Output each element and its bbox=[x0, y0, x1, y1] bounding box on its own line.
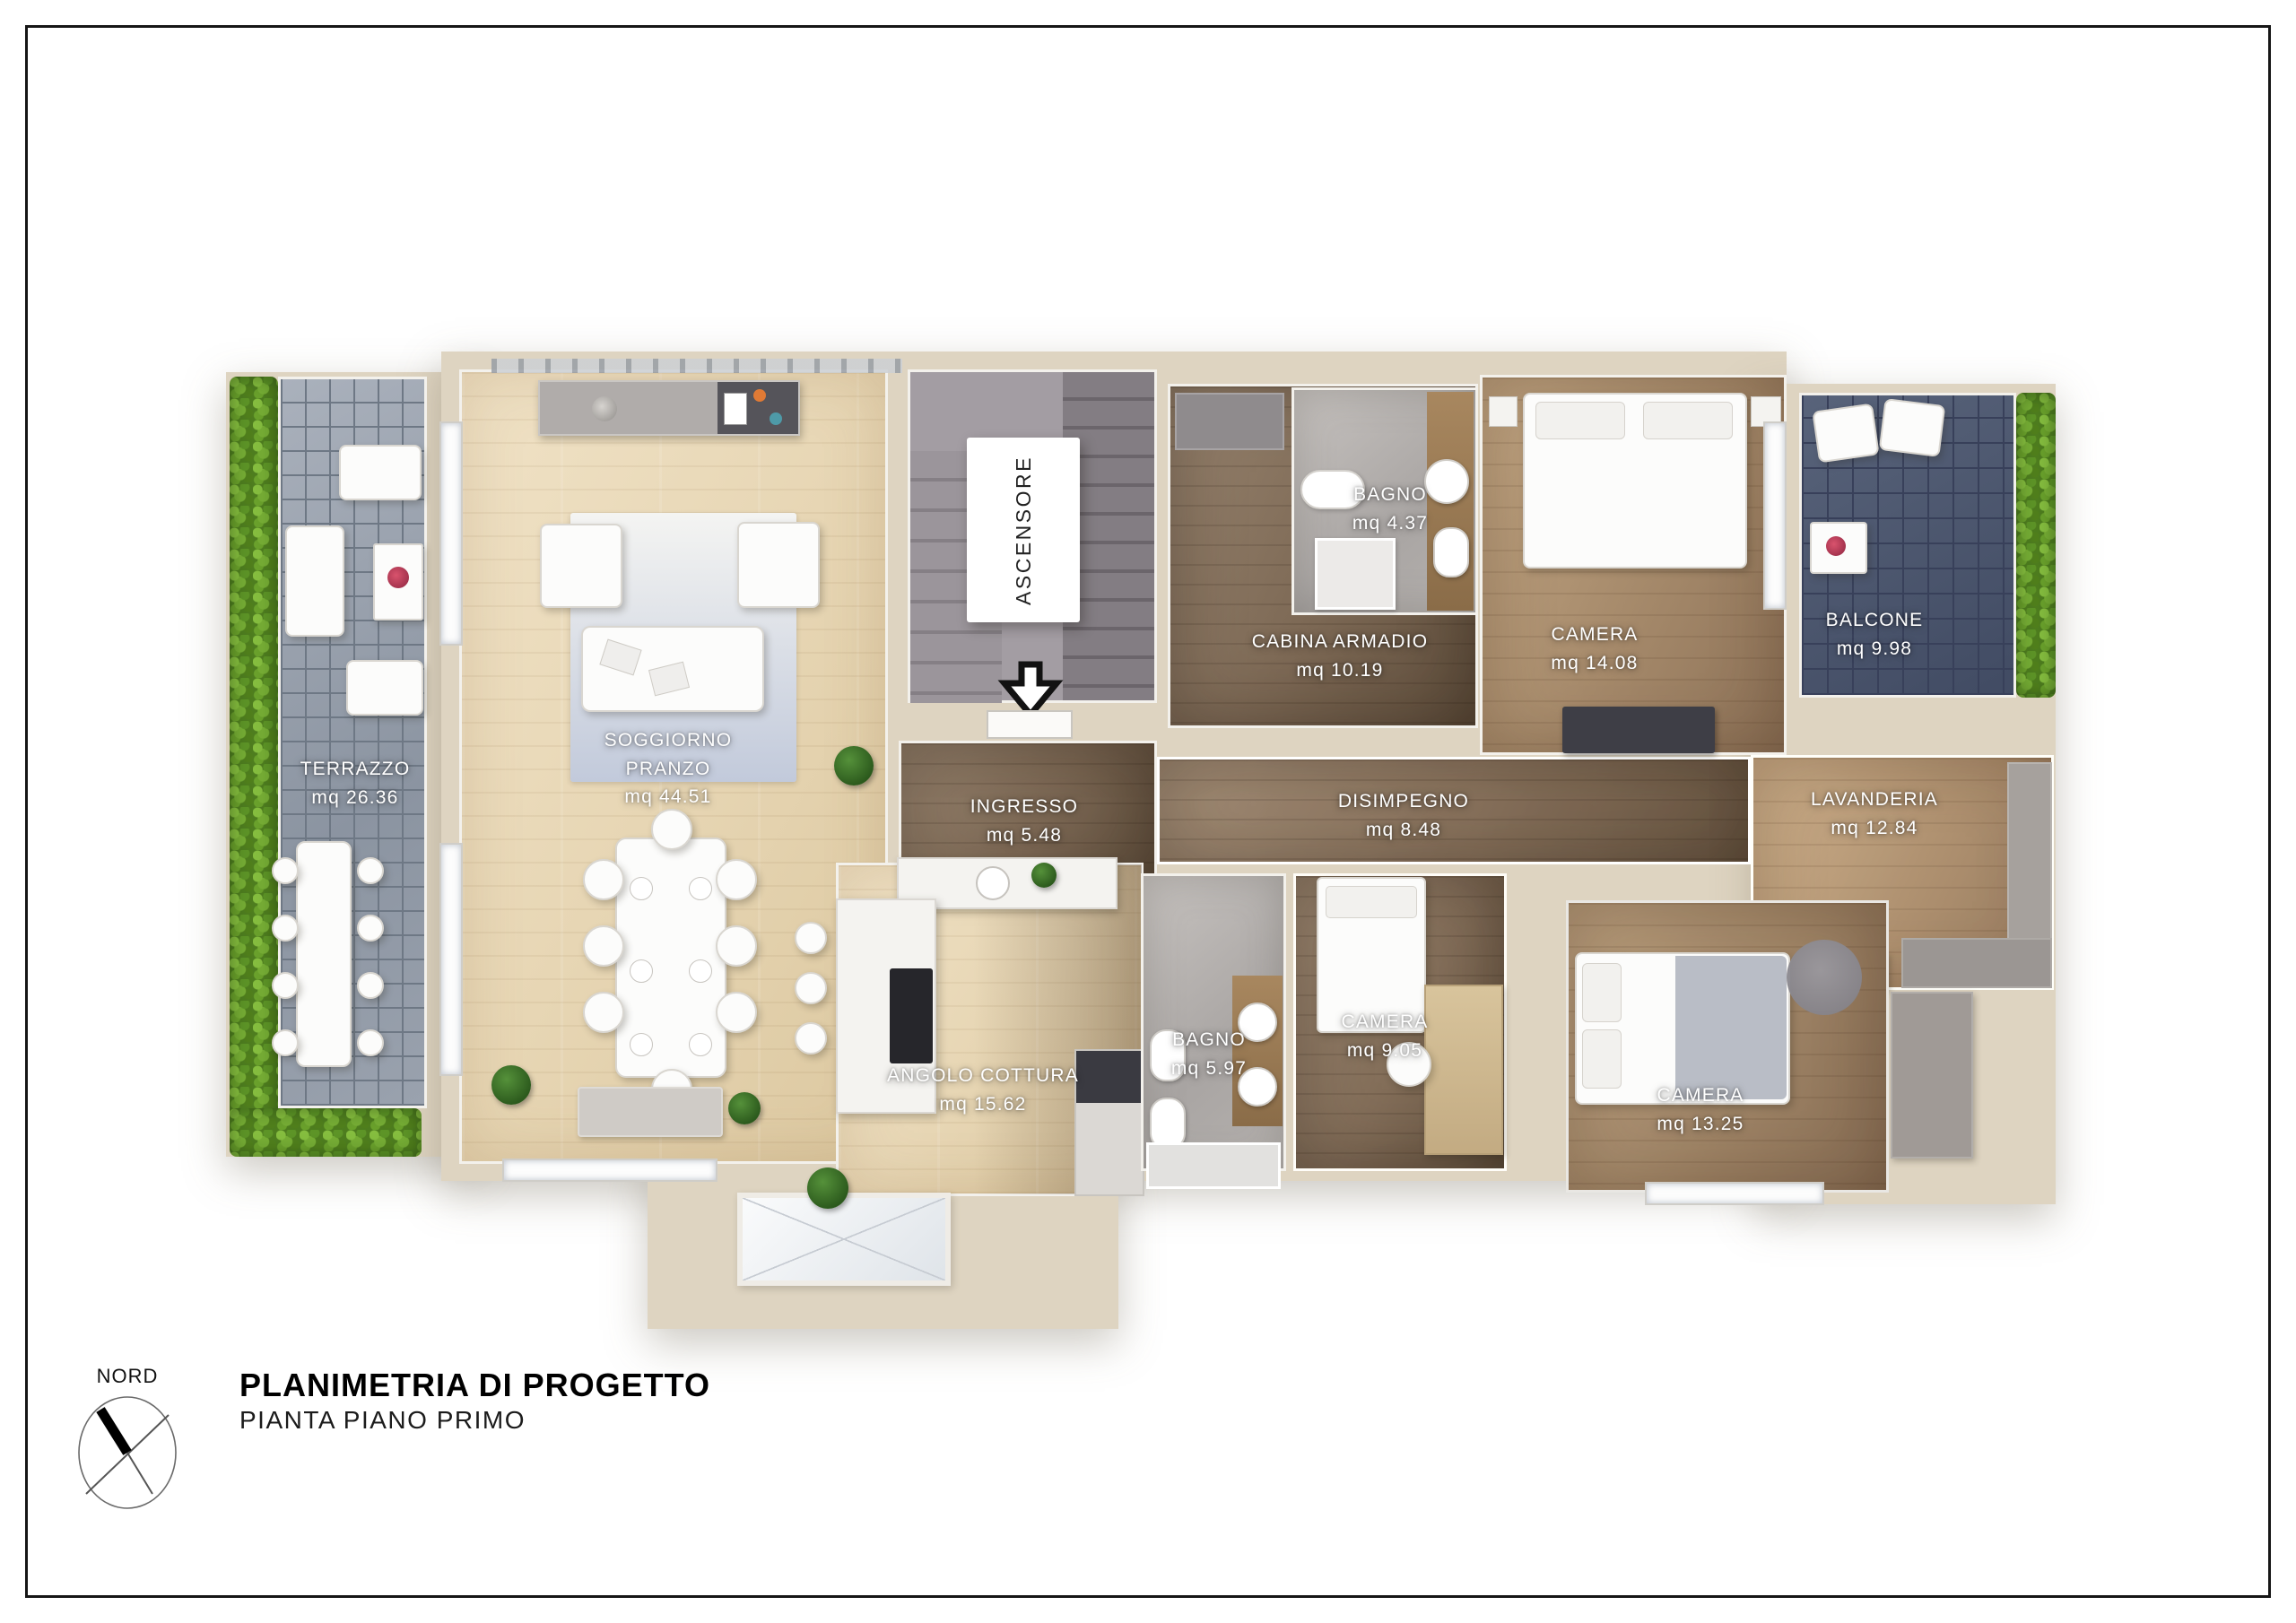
label-lavanderia: LAVANDERIA mq 12.84 bbox=[1767, 785, 1982, 842]
room-name: SOGGIORNO PRANZO bbox=[587, 726, 749, 783]
floorplan-page: ASCENSORE bbox=[0, 0, 2296, 1623]
terrace-chair bbox=[272, 1029, 299, 1056]
skylight bbox=[737, 1193, 951, 1286]
label-angolo-cottura: ANGOLO COTTURA mq 15.62 bbox=[839, 1062, 1126, 1118]
nightstand bbox=[1489, 396, 1518, 427]
terrace-chair bbox=[357, 972, 384, 999]
sofa bbox=[581, 626, 764, 712]
wardrobe-grey bbox=[1891, 992, 1973, 1159]
room-name: BAGNO bbox=[1151, 1026, 1267, 1055]
sofa-pillow bbox=[648, 662, 690, 697]
hedge-bottom bbox=[230, 1108, 422, 1157]
dining-chair bbox=[583, 859, 624, 900]
terrace-sofa bbox=[339, 445, 422, 500]
hedge-right bbox=[2016, 393, 2056, 698]
room-area: mq 44.51 bbox=[587, 783, 749, 811]
dining-chair bbox=[716, 859, 757, 900]
compass-north-label: NORD bbox=[97, 1365, 159, 1388]
room-area: mq 9.05 bbox=[1313, 1037, 1457, 1065]
deco-orange bbox=[753, 389, 766, 402]
label-camera-singola: CAMERA mq 9.05 bbox=[1313, 1008, 1457, 1064]
label-camera-grande: CAMERA mq 14.08 bbox=[1505, 621, 1684, 677]
soggiorno-window-left-1 bbox=[439, 421, 463, 646]
terrace-sofa bbox=[285, 525, 344, 637]
pillow bbox=[1582, 1029, 1622, 1089]
cooktop bbox=[890, 968, 933, 1063]
label-terrazzo: TERRAZZO mq 26.36 bbox=[279, 755, 431, 811]
balcony-chair bbox=[1812, 404, 1879, 464]
room-area: mq 4.37 bbox=[1327, 509, 1453, 538]
deco-teal bbox=[770, 412, 782, 425]
laundry-cabinet-corner bbox=[1901, 938, 2052, 988]
elevator-label: ASCENSORE bbox=[1012, 456, 1036, 605]
terrace-chair bbox=[272, 857, 299, 884]
dining-chair bbox=[651, 809, 692, 850]
room-name: LAVANDERIA bbox=[1767, 785, 1982, 814]
plant bbox=[1031, 863, 1057, 888]
plant bbox=[728, 1092, 761, 1124]
room-name: INGRESSO bbox=[935, 793, 1114, 821]
place-setting bbox=[630, 877, 653, 900]
closet-row bbox=[1175, 393, 1284, 450]
room-area: mq 8.48 bbox=[1296, 816, 1511, 845]
label-bagno-piccolo: BAGNO mq 4.37 bbox=[1327, 481, 1453, 537]
pillow bbox=[1326, 886, 1417, 918]
bar-stool bbox=[795, 1022, 827, 1055]
terrace-chair bbox=[357, 915, 384, 942]
room-name: CAMERA bbox=[1505, 621, 1684, 649]
tv-console-dark bbox=[1562, 707, 1715, 753]
label-bagno-grande: BAGNO mq 5.97 bbox=[1151, 1026, 1267, 1082]
label-balcone: BALCONE mq 9.98 bbox=[1794, 606, 1955, 663]
terrace-sofa bbox=[346, 660, 423, 716]
sofa-pillow bbox=[599, 639, 641, 676]
room-name: CAMERA bbox=[1629, 1081, 1772, 1110]
dining-chair bbox=[583, 992, 624, 1033]
sideboard bbox=[538, 380, 800, 436]
room-name: BALCONE bbox=[1794, 606, 1955, 635]
label-camera-doppia: CAMERA mq 13.25 bbox=[1629, 1081, 1772, 1138]
terrace-dining-table bbox=[296, 841, 352, 1067]
pergola-grille bbox=[491, 359, 902, 373]
label-soggiorno: SOGGIORNO PRANZO mq 44.51 bbox=[587, 726, 749, 811]
room-area: mq 26.36 bbox=[279, 784, 431, 812]
plan-subtitle: PIANTA PIANO PRIMO bbox=[239, 1406, 526, 1435]
label-ingresso: INGRESSO mq 5.48 bbox=[935, 793, 1114, 849]
camera-doppia-window bbox=[1645, 1182, 1824, 1205]
flower-vase bbox=[387, 567, 409, 588]
round-rug bbox=[1787, 940, 1862, 1015]
terrace-chair bbox=[272, 972, 299, 999]
bar-stool bbox=[795, 922, 827, 954]
camera-grande-window bbox=[1763, 421, 1787, 610]
pillow bbox=[1643, 402, 1733, 439]
room-area: mq 5.48 bbox=[935, 821, 1114, 850]
terrace-chair bbox=[357, 857, 384, 884]
label-disimpegno: DISIMPEGNO mq 8.48 bbox=[1296, 787, 1511, 844]
label-cabina-armadio: CABINA ARMADIO mq 10.19 bbox=[1196, 628, 1483, 684]
room-name: TERRAZZO bbox=[279, 755, 431, 784]
elevator: ASCENSORE bbox=[967, 438, 1080, 622]
double-bed bbox=[1523, 393, 1747, 568]
room-name: ANGOLO COTTURA bbox=[839, 1062, 1126, 1090]
dining-chair bbox=[583, 925, 624, 967]
place-setting bbox=[689, 959, 712, 983]
room-area: mq 13.25 bbox=[1629, 1110, 1772, 1139]
plant bbox=[807, 1167, 848, 1209]
book-stack bbox=[724, 393, 747, 425]
compass-icon bbox=[75, 1393, 179, 1512]
soggiorno-window-left-2 bbox=[439, 843, 463, 1076]
room-name: BAGNO bbox=[1327, 481, 1453, 509]
room-area: mq 12.84 bbox=[1767, 814, 1982, 843]
terrace-chair bbox=[357, 1029, 384, 1056]
place-setting bbox=[689, 1033, 712, 1056]
place-setting bbox=[689, 877, 712, 900]
room-area: mq 5.97 bbox=[1151, 1055, 1267, 1083]
shower-tray bbox=[1146, 1142, 1281, 1189]
tv-sideboard bbox=[578, 1087, 723, 1137]
plant bbox=[491, 1065, 531, 1105]
plan-title: PLANIMETRIA DI PROGETTO bbox=[239, 1367, 710, 1404]
terrace-chair bbox=[272, 915, 299, 942]
room-name: CABINA ARMADIO bbox=[1196, 628, 1483, 656]
room-area: mq 15.62 bbox=[839, 1090, 1126, 1119]
blanket bbox=[1675, 956, 1787, 1099]
deco-bowl bbox=[592, 396, 617, 421]
entry-door bbox=[987, 710, 1073, 739]
armchair bbox=[540, 524, 622, 608]
shower-tray bbox=[1315, 538, 1396, 610]
room-name: DISIMPEGNO bbox=[1296, 787, 1511, 816]
plant bbox=[834, 746, 874, 785]
kitchen-sink bbox=[976, 866, 1010, 900]
hedge-left bbox=[230, 377, 278, 1153]
pillow bbox=[1535, 402, 1625, 439]
room-area: mq 14.08 bbox=[1505, 649, 1684, 678]
room-area: mq 9.98 bbox=[1794, 635, 1955, 664]
room-area: mq 10.19 bbox=[1196, 656, 1483, 685]
place-setting bbox=[630, 1033, 653, 1056]
place-setting bbox=[630, 959, 653, 983]
room-name: CAMERA bbox=[1313, 1008, 1457, 1037]
pillow bbox=[1582, 963, 1622, 1022]
bar-stool bbox=[795, 972, 827, 1004]
flower-pot bbox=[1826, 536, 1846, 556]
soggiorno-window-bottom bbox=[502, 1159, 717, 1182]
dining-chair bbox=[716, 992, 757, 1033]
dining-chair bbox=[716, 925, 757, 967]
balcony-chair bbox=[1879, 398, 1946, 457]
armchair bbox=[737, 522, 820, 608]
